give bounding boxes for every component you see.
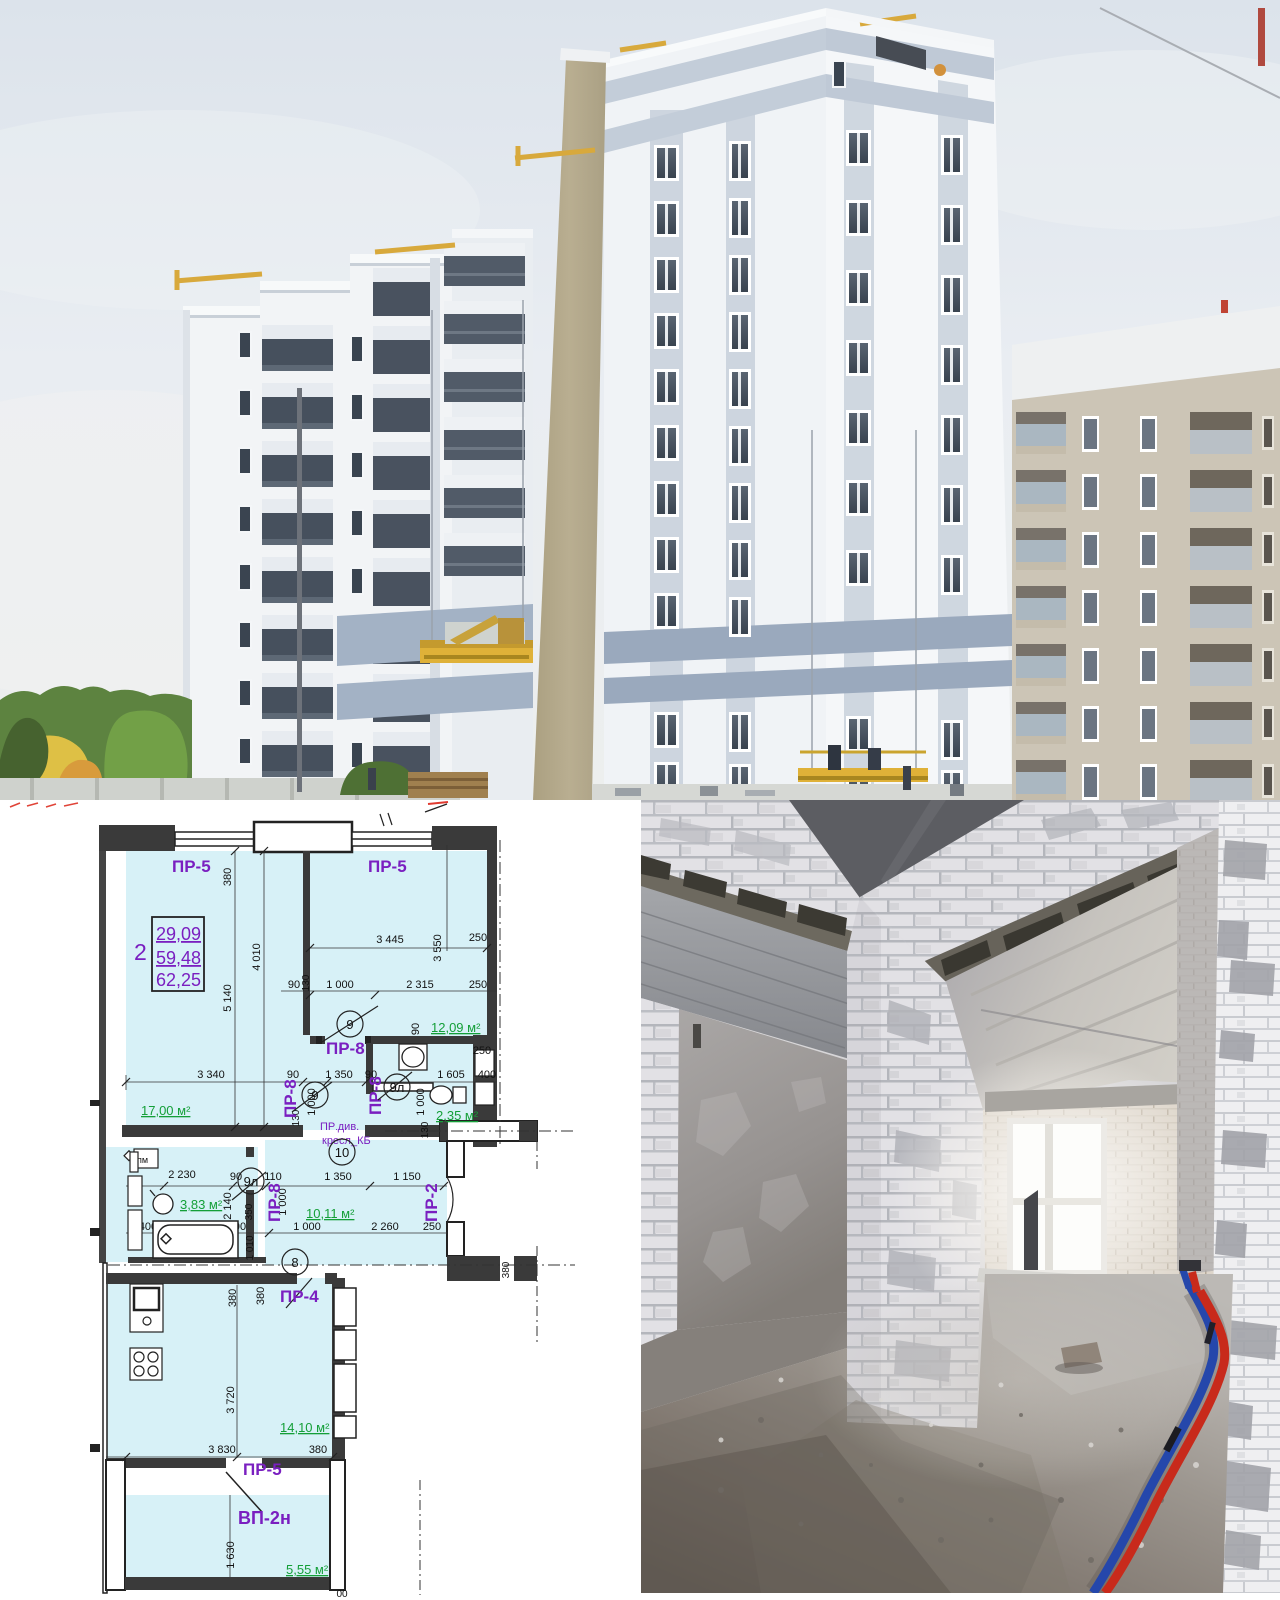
svg-text:1 000: 1 000	[326, 979, 354, 991]
svg-text:пм: пм	[137, 1155, 148, 1165]
svg-text:90: 90	[287, 1069, 299, 1081]
svg-text:5,55 м²: 5,55 м²	[286, 1562, 329, 1577]
svg-text:ПР-8: ПР-8	[281, 1079, 300, 1118]
svg-text:2 315: 2 315	[406, 979, 434, 991]
svg-text:ВП-2н: ВП-2н	[238, 1508, 291, 1528]
svg-text:90: 90	[288, 979, 300, 991]
svg-text:00: 00	[336, 1589, 348, 1600]
svg-text:2: 2	[134, 939, 147, 965]
svg-text:1 150: 1 150	[393, 1171, 421, 1183]
svg-text:2 140: 2 140	[222, 1192, 234, 1220]
svg-text:380: 380	[309, 1444, 327, 1456]
svg-text:17,00 м²: 17,00 м²	[141, 1103, 191, 1118]
svg-text:8: 8	[291, 1255, 298, 1270]
svg-text:9: 9	[311, 1088, 318, 1103]
svg-text:ПР-8: ПР-8	[326, 1039, 365, 1058]
svg-text:250: 250	[473, 1045, 491, 1057]
svg-text:380: 380	[227, 1289, 239, 1307]
svg-text:4 010: 4 010	[251, 943, 263, 971]
svg-text:2 260: 2 260	[371, 1221, 399, 1233]
svg-text:3 445: 3 445	[376, 934, 404, 946]
svg-text:59,48: 59,48	[156, 948, 201, 968]
svg-text:2 230: 2 230	[168, 1169, 196, 1181]
svg-text:ПР-2: ПР-2	[422, 1183, 441, 1222]
svg-text:2,35 м²: 2,35 м²	[436, 1108, 479, 1123]
svg-text:1 350: 1 350	[325, 1069, 353, 1081]
svg-text:400: 400	[478, 1069, 496, 1081]
svg-text:250: 250	[469, 979, 487, 991]
svg-text:3 550: 3 550	[432, 934, 444, 962]
svg-text:90: 90	[410, 1023, 422, 1035]
svg-text:1 630: 1 630	[225, 1541, 237, 1569]
svg-text:1 010: 1 010	[245, 1235, 256, 1260]
svg-text:1 000: 1 000	[293, 1221, 321, 1233]
svg-text:380: 380	[222, 868, 234, 886]
svg-text:1 000: 1 000	[415, 1088, 427, 1116]
svg-text:10,11 м²: 10,11 м²	[306, 1206, 355, 1221]
svg-text:9л: 9л	[390, 1080, 405, 1095]
svg-text:ПР-5: ПР-5	[368, 857, 407, 876]
svg-text:110: 110	[264, 1171, 282, 1183]
svg-text:ПР-4: ПР-4	[280, 1287, 319, 1306]
svg-text:3 830: 3 830	[208, 1444, 236, 1456]
svg-text:1 350: 1 350	[324, 1171, 352, 1183]
svg-text:29,09: 29,09	[156, 924, 201, 944]
svg-text:250: 250	[469, 932, 487, 944]
svg-text:9л: 9л	[244, 1174, 259, 1189]
svg-text:ПР-5: ПР-5	[172, 857, 211, 876]
svg-text:130: 130	[301, 974, 312, 991]
svg-text:3,83 м²: 3,83 м²	[180, 1197, 223, 1212]
svg-text:62,25: 62,25	[156, 970, 201, 990]
svg-text:5 140: 5 140	[222, 984, 234, 1012]
svg-text:ПР.див.: ПР.див.	[320, 1121, 359, 1133]
svg-text:130: 130	[420, 1121, 431, 1138]
svg-text:3 720: 3 720	[225, 1386, 237, 1414]
svg-text:ПР-8: ПР-8	[265, 1183, 284, 1222]
svg-text:9: 9	[346, 1017, 353, 1032]
svg-text:3 340: 3 340	[197, 1069, 225, 1081]
svg-text:1 605: 1 605	[437, 1069, 465, 1081]
svg-text:14,10 м²: 14,10 м²	[280, 1420, 330, 1435]
svg-text:350: 350	[244, 1203, 255, 1220]
svg-text:380: 380	[255, 1287, 267, 1305]
svg-text:ПР-5: ПР-5	[243, 1460, 282, 1479]
svg-text:380: 380	[501, 1261, 512, 1278]
svg-text:10: 10	[335, 1145, 349, 1160]
svg-text:12,09 м²: 12,09 м²	[431, 1020, 481, 1035]
svg-text:ПР-8: ПР-8	[366, 1076, 385, 1115]
